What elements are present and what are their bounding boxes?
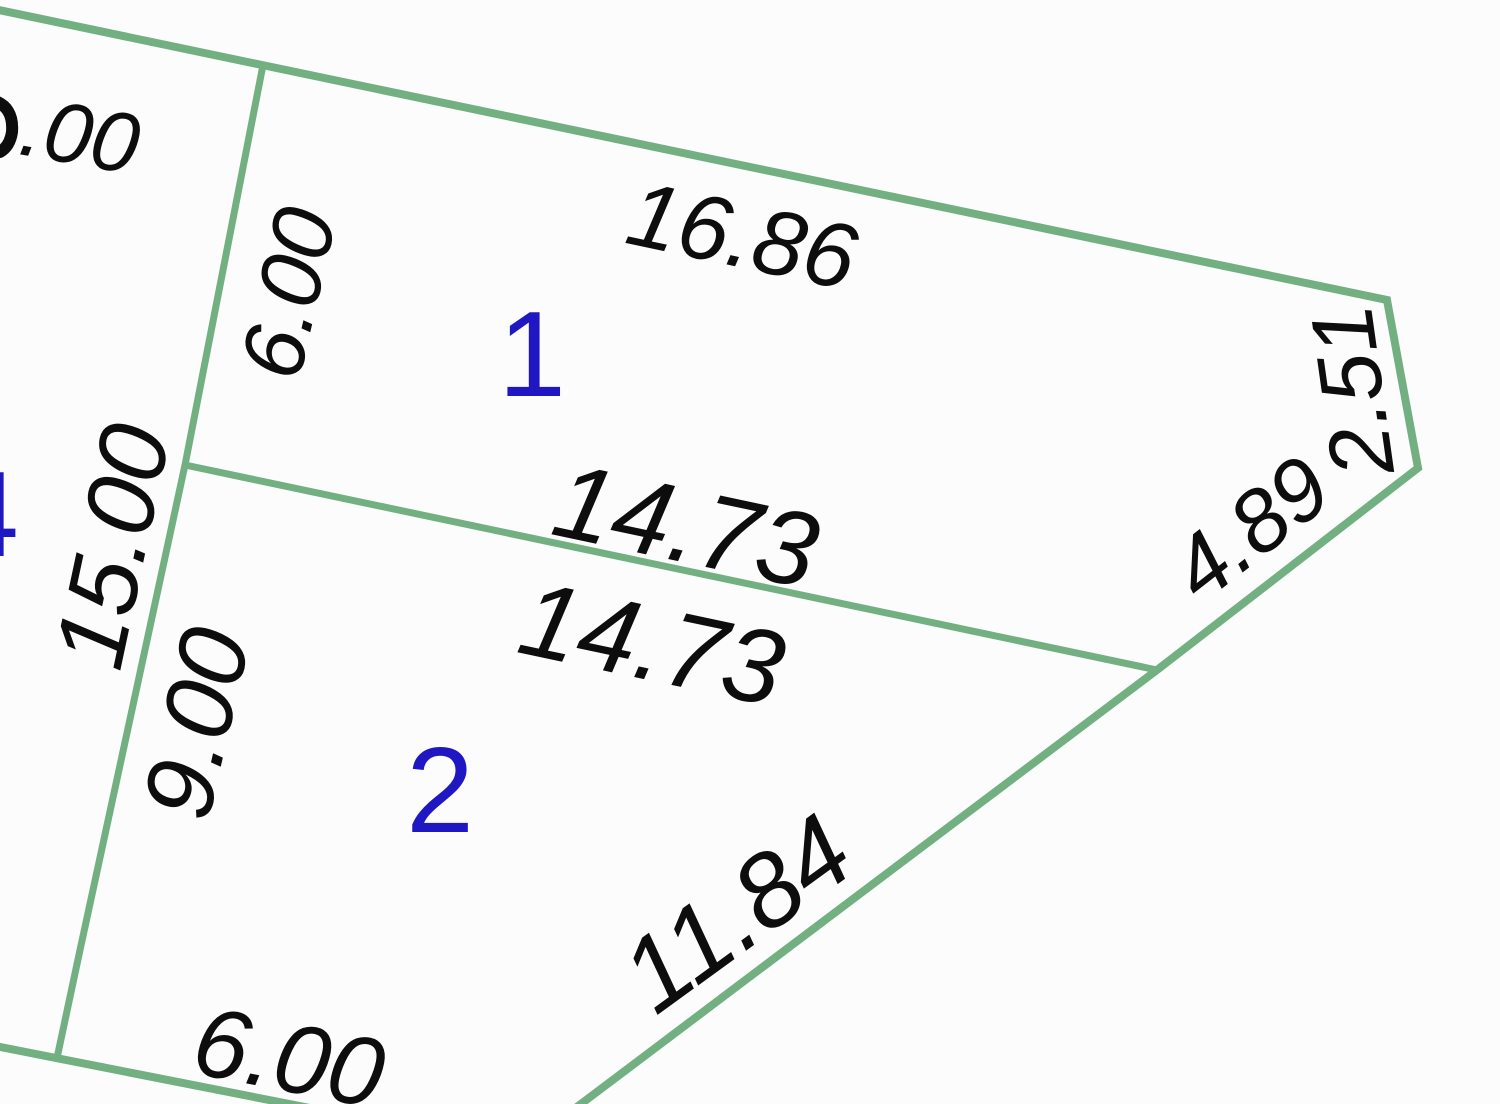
- dimension-labels: .00 6.00 16.86 2.51 4.89 14.73 14.73 15.…: [14, 79, 1414, 1104]
- clipped-digit-fragment: [0, 100, 12, 152]
- parcel-map-svg: .00 6.00 16.86 2.51 4.89 14.73 14.73 15.…: [0, 0, 1500, 1104]
- parcel-map-canvas: .00 6.00 16.86 2.51 4.89 14.73 14.73 15.…: [0, 0, 1500, 1104]
- dimension-label-p2-south: 6.00: [185, 985, 393, 1104]
- parcel-number-1: 1: [498, 286, 566, 422]
- parcel-number-2: 2: [406, 722, 474, 858]
- dimension-label-top-left-partial: .00: [14, 79, 147, 193]
- parcel-number-4: 4: [0, 446, 19, 582]
- dimension-label-p1-west: 6.00: [221, 198, 356, 387]
- dimension-label-p2-southeast: 11.84: [601, 793, 873, 1035]
